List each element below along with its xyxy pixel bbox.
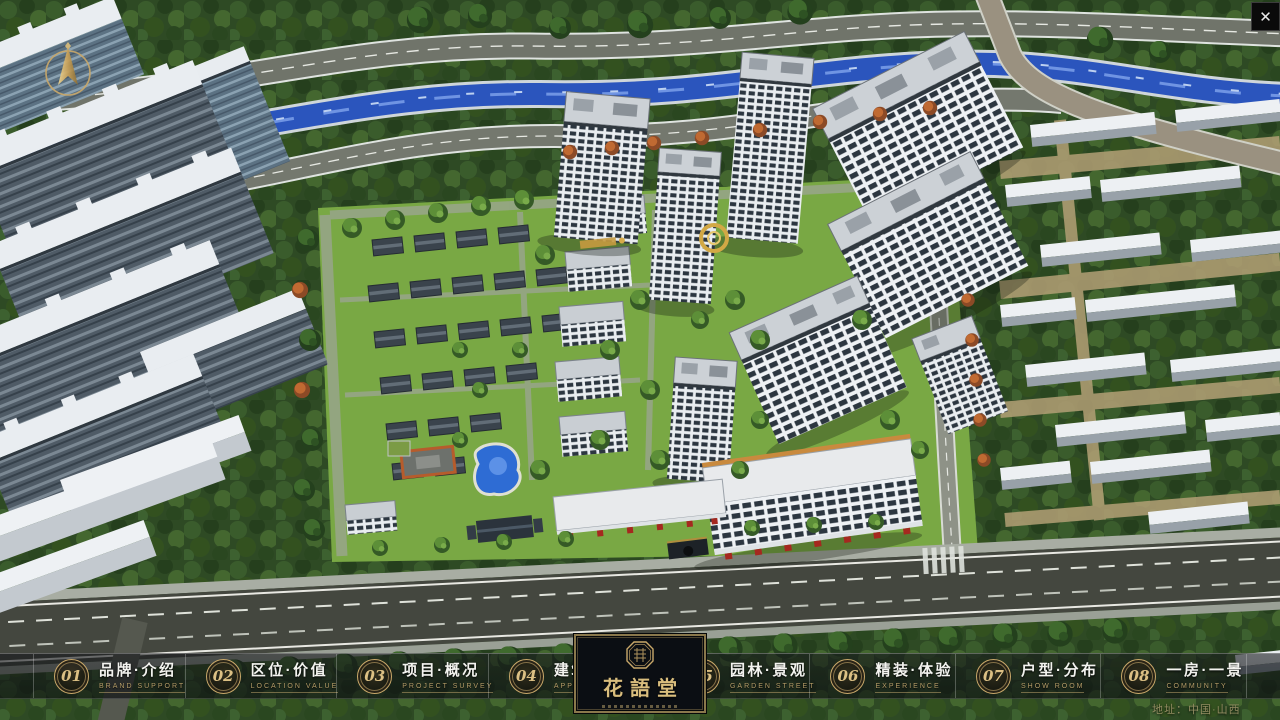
green-roof [388, 441, 410, 456]
address-text: 地址：中国·山西 [1152, 701, 1241, 717]
menu-label-en: LOCATION VALUE [251, 683, 339, 693]
logo-subtext [602, 705, 678, 708]
menu-number: 03 [364, 667, 385, 685]
menu-label-zh: 精装·体验 [875, 659, 953, 680]
menu-item-project[interactable]: 03 项目·概况 PROJECT SURVEY [336, 654, 488, 698]
menu-number: 01 [61, 667, 82, 685]
menu-number: 08 [1129, 667, 1150, 685]
menu-label-zh: 品牌·介绍 [99, 659, 185, 680]
menu-item-location[interactable]: 02 区位·价值 LOCATION VALUE [185, 654, 337, 698]
seal-emblem-icon [625, 640, 655, 670]
menu-item-floorplan[interactable]: 07 户型·分布 SHOW ROOM [955, 654, 1101, 698]
menu-number-badge: 07 [976, 659, 1011, 694]
menu-number-badge: 01 [54, 659, 89, 694]
menu-number: 07 [983, 667, 1004, 685]
menu-label-en: GARDEN STREET [730, 683, 816, 693]
menu-label-en: COMMUNITY [1166, 683, 1227, 693]
logo-title: 花語堂 [596, 672, 684, 701]
menu-label-en: EXPERIENCE [875, 683, 940, 693]
menu-label-en: SHOW ROOM [1021, 683, 1085, 693]
menu-number: 04 [516, 667, 537, 685]
menu-number-badge: 03 [357, 659, 392, 694]
pool [475, 444, 521, 495]
site-aerial-render [0, 0, 1280, 720]
menu-label-en: BRAND SUPPORT [99, 683, 185, 693]
menu-label-zh: 园林·景观 [730, 659, 810, 680]
menu-label-en: PROJECT SURVEY [402, 683, 493, 693]
menu-number-badge: 06 [830, 659, 865, 694]
close-button[interactable]: ✕ [1251, 2, 1280, 31]
menu-label-zh: 项目·概况 [402, 659, 488, 680]
north-compass-icon [36, 38, 100, 104]
menu-number: 02 [213, 667, 234, 685]
menu-item-brand[interactable]: 01 品牌·介绍 BRAND SUPPORT [33, 654, 185, 698]
menu-number-badge: 04 [509, 659, 544, 694]
menu-strip-left: 01 品牌·介绍 BRAND SUPPORT 02 区位·价值 LOCATION… [33, 654, 639, 698]
menu-item-interior[interactable]: 06 精装·体验 EXPERIENCE [809, 654, 955, 698]
menu-number-badge: 08 [1121, 659, 1156, 694]
logo-panel[interactable]: 花語堂 [574, 634, 706, 713]
close-icon: ✕ [1259, 8, 1272, 26]
menu-label-zh: 区位·价值 [251, 659, 337, 680]
menu-item-views[interactable]: 08 一房·一景 COMMUNITY [1100, 654, 1247, 698]
menu-strip-right: 05 园林·景观 GARDEN STREET 06 精装·体验 EXPERIEN… [664, 654, 1247, 698]
menu-number: 06 [838, 667, 859, 685]
menu-label-zh: 一房·一景 [1166, 659, 1244, 680]
menu-number-badge: 02 [206, 659, 241, 694]
menu-label-zh: 户型·分布 [1021, 659, 1099, 680]
